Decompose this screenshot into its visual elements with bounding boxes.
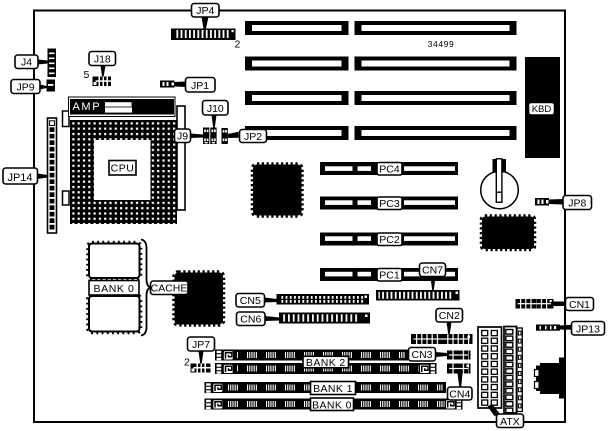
svg-text:CN3: CN3 xyxy=(411,349,432,361)
svg-text:JP7: JP7 xyxy=(192,339,210,351)
svg-text:J10: J10 xyxy=(207,103,224,115)
svg-text:J4: J4 xyxy=(21,57,32,69)
svg-text:JP4: JP4 xyxy=(196,5,214,17)
svg-text:JP14: JP14 xyxy=(7,172,32,184)
svg-text:JP13: JP13 xyxy=(576,323,600,335)
svg-text:PC3: PC3 xyxy=(379,198,400,210)
svg-text:PC4: PC4 xyxy=(379,164,400,176)
svg-text:5: 5 xyxy=(84,69,90,81)
svg-text:JP9: JP9 xyxy=(16,82,34,94)
svg-text:CPU: CPU xyxy=(111,163,135,175)
svg-text:34499: 34499 xyxy=(428,39,455,49)
svg-text:CN2: CN2 xyxy=(439,310,460,322)
svg-text:BANK 0: BANK 0 xyxy=(94,283,135,295)
svg-text:CN5: CN5 xyxy=(240,295,261,307)
svg-text:J18: J18 xyxy=(94,54,111,66)
svg-text:CACHE: CACHE xyxy=(151,283,188,295)
svg-text:J9: J9 xyxy=(177,131,188,143)
svg-text:JP2: JP2 xyxy=(244,131,262,143)
svg-text:AMP: AMP xyxy=(73,101,102,113)
svg-text:2: 2 xyxy=(235,39,241,51)
svg-text:PC2: PC2 xyxy=(379,234,400,246)
svg-text:CN1: CN1 xyxy=(569,299,590,311)
svg-text:PC1: PC1 xyxy=(379,270,400,282)
svg-text:BANK 0: BANK 0 xyxy=(312,400,352,412)
svg-text:JP1: JP1 xyxy=(191,80,209,92)
svg-text:ATX: ATX xyxy=(500,416,520,428)
svg-text:CN4: CN4 xyxy=(449,389,470,401)
svg-text:KBD: KBD xyxy=(532,104,552,115)
svg-text:2: 2 xyxy=(184,357,190,369)
svg-text:BANK 2: BANK 2 xyxy=(306,357,346,369)
svg-text:BANK 1: BANK 1 xyxy=(313,383,353,395)
svg-text:JP8: JP8 xyxy=(568,198,586,210)
svg-text:CN7: CN7 xyxy=(422,265,443,277)
svg-text:CN6: CN6 xyxy=(240,314,261,326)
